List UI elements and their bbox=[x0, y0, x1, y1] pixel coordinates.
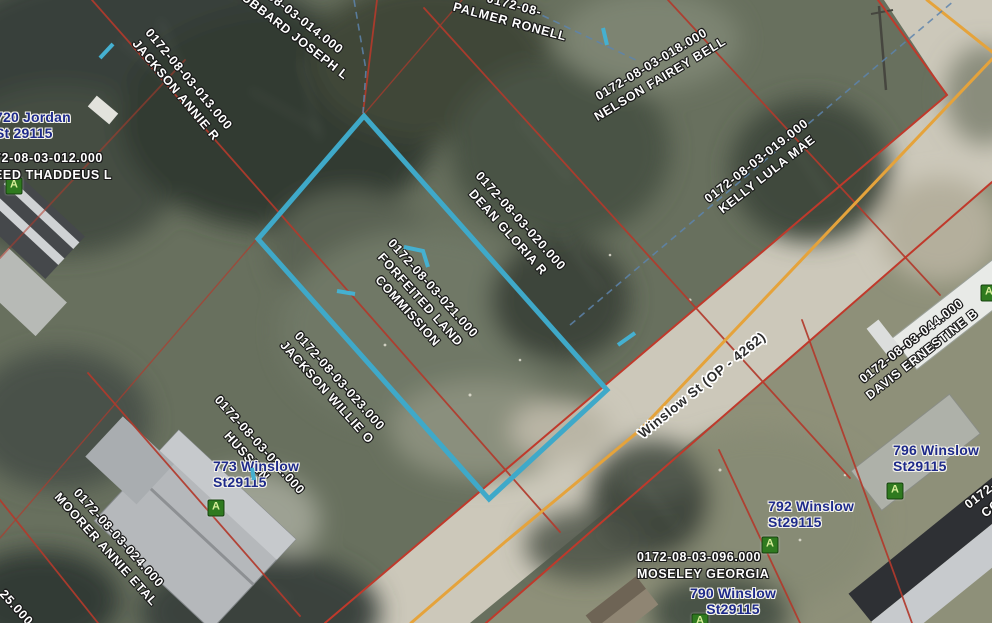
address-line: St29115 bbox=[706, 601, 760, 617]
address-line: St29115 bbox=[893, 458, 947, 474]
address-label-790-winslow: 790 Winslow St29115 bbox=[690, 585, 776, 617]
parcel-number: 0172-08-03-096.000 bbox=[637, 549, 761, 566]
address-line: 773 Winslow bbox=[213, 458, 299, 474]
parcel-number: 72-08-03-012.000 bbox=[0, 150, 103, 167]
address-line: 790 Winslow bbox=[690, 585, 776, 601]
address-line: 796 Winslow bbox=[893, 442, 979, 458]
address-label-720-jordan: 720 Jordan St 29115 bbox=[0, 109, 71, 141]
parcel-owner: MOSELEY GEORGIA bbox=[637, 566, 769, 583]
parcel-owner: EED THADDEUS L bbox=[0, 167, 112, 184]
address-label-773-winslow: 773 Winslow St29115 bbox=[213, 458, 299, 490]
address-line: 792 Winslow bbox=[768, 498, 854, 514]
address-line: St 29115 bbox=[0, 125, 53, 141]
address-line: St29115 bbox=[213, 474, 267, 490]
address-line: 720 Jordan bbox=[0, 109, 71, 125]
address-point-marker[interactable]: A bbox=[887, 483, 904, 500]
address-line: St29115 bbox=[768, 514, 822, 530]
address-point-marker[interactable]: A bbox=[981, 285, 992, 302]
address-point-marker[interactable]: A bbox=[208, 500, 225, 517]
address-label-796-winslow: 796 Winslow St29115 bbox=[893, 442, 979, 474]
parcel-label-reed: 72-08-03-012.000 EED THADDEUS L bbox=[0, 150, 112, 184]
map-canvas[interactable]: 08-03-014.000 UBBARD JOSEPH L 0172-08- P… bbox=[0, 0, 992, 623]
address-point-marker[interactable]: A bbox=[762, 537, 779, 554]
parcel-label-moseley: 0172-08-03-096.000 MOSELEY GEORGIA bbox=[637, 549, 769, 583]
address-label-792-winslow: 792 Winslow St29115 bbox=[768, 498, 854, 530]
